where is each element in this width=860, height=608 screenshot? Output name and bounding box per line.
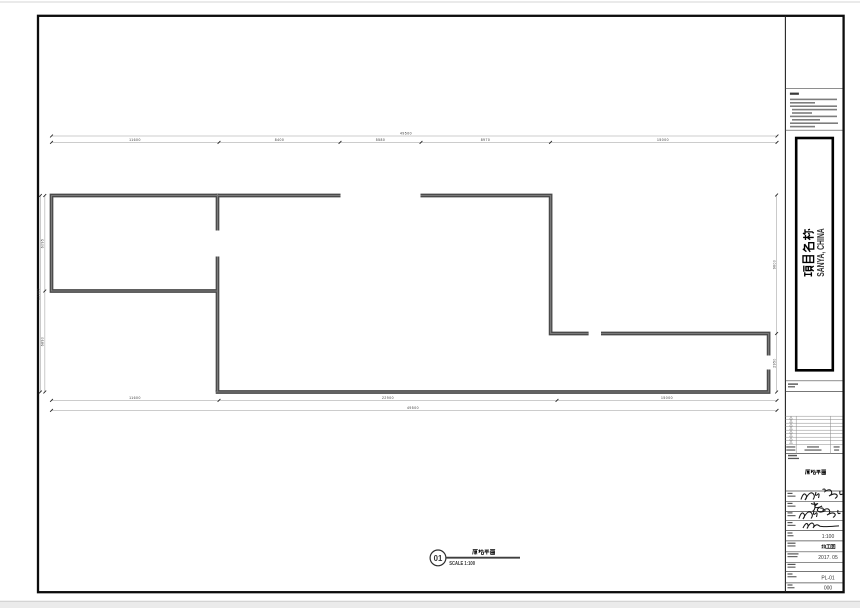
svg-text:000: 000	[824, 586, 833, 592]
svg-text:6095: 6095	[41, 239, 45, 249]
svg-text:2017. 05: 2017. 05	[818, 555, 838, 561]
svg-text:6890: 6890	[41, 337, 45, 347]
svg-text:15000: 15000	[657, 138, 669, 142]
svg-text:49500: 49500	[400, 132, 412, 136]
svg-text:8970: 8970	[481, 138, 491, 142]
svg-text:1:100: 1:100	[822, 534, 835, 540]
svg-text:01: 01	[434, 554, 443, 563]
svg-text:22900: 22900	[382, 396, 394, 400]
svg-text:11600: 11600	[129, 396, 141, 400]
svg-text:11600: 11600	[129, 138, 141, 142]
svg-text:15000: 15000	[661, 396, 673, 400]
svg-text:8400: 8400	[275, 138, 285, 142]
svg-text:2950: 2950	[772, 358, 776, 368]
svg-text:9600: 9600	[772, 260, 776, 270]
svg-text:PL-01: PL-01	[821, 575, 835, 581]
svg-text:SCALE 1:100: SCALE 1:100	[449, 560, 475, 567]
svg-text:5580: 5580	[376, 138, 386, 142]
svg-text:12985: 12985	[36, 288, 40, 300]
svg-text:49500: 49500	[407, 406, 419, 410]
svg-text:SANYA, CHINA: SANYA, CHINA	[815, 228, 827, 276]
